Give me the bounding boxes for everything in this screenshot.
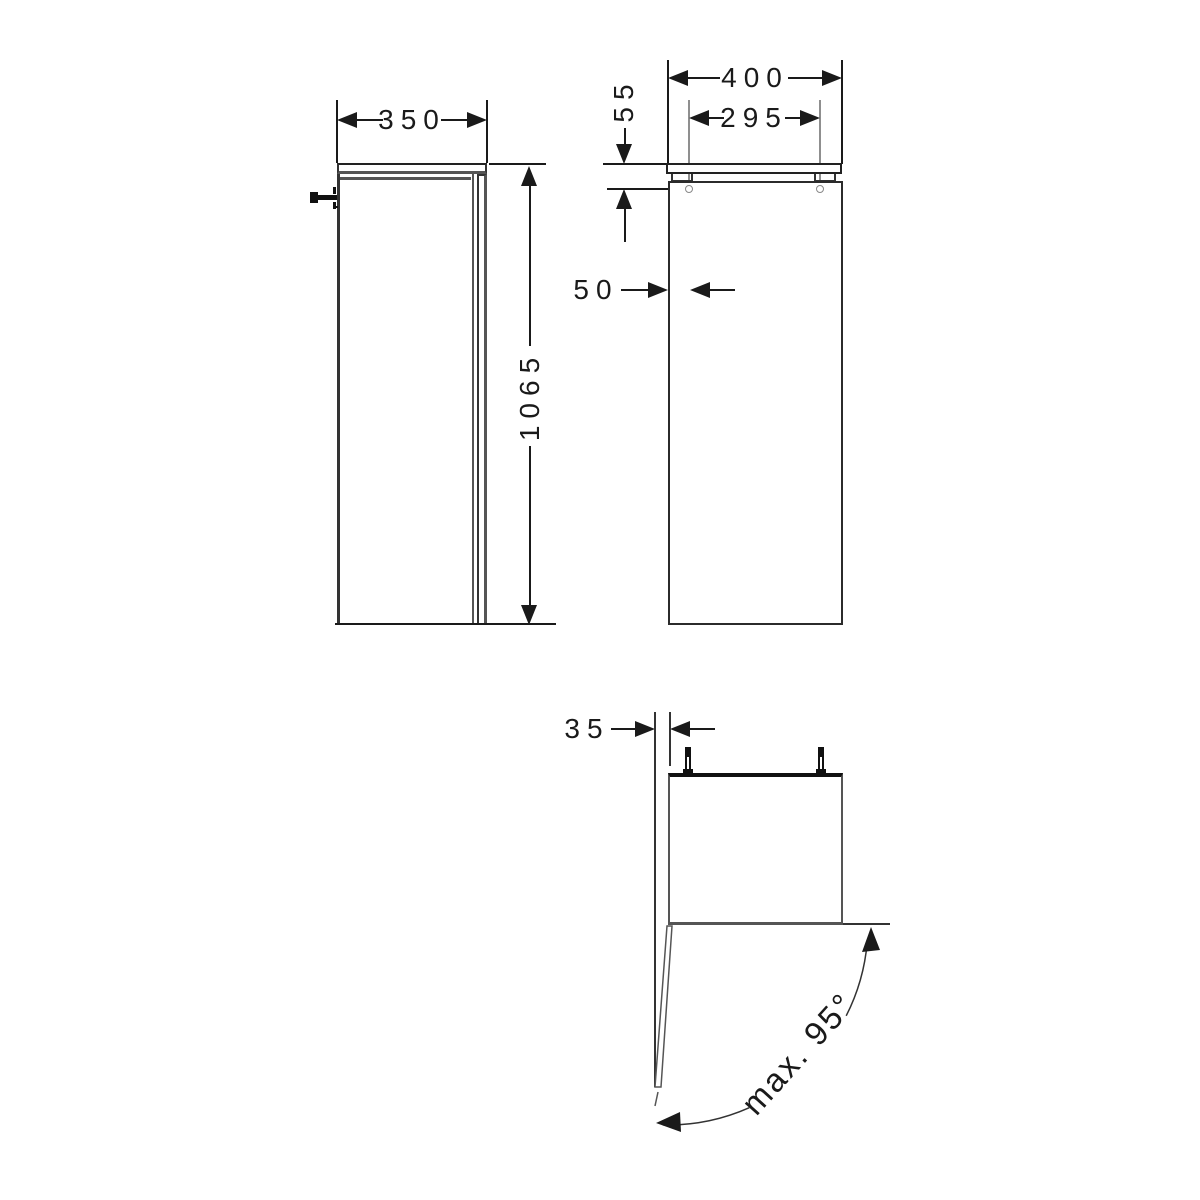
cabinet-technical-drawing: 350 1065 400 295 55 50: [0, 0, 1200, 1200]
door-swing-graphic: max. 95°: [0, 0, 1200, 1200]
open-door-shape: [655, 926, 672, 1087]
dim-label-door-angle: max. 95°: [734, 985, 862, 1122]
arrow-left-icon: [656, 1112, 681, 1132]
arrow-up-icon: [862, 927, 880, 952]
door-extension-dash: [655, 1092, 658, 1106]
